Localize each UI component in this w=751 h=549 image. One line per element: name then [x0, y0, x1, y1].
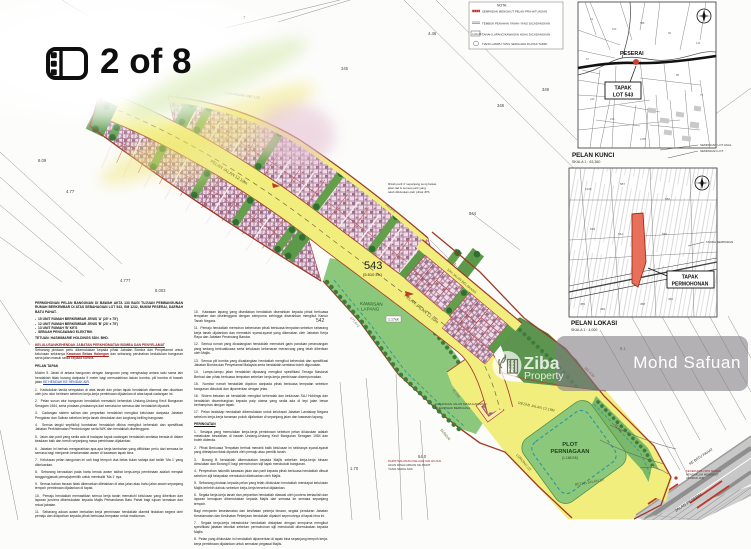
- svg-text:544: 544: [469, 211, 477, 216]
- svg-text:PERMOHONAN: PERMOHONAN: [672, 282, 709, 288]
- svg-text:TANDA SEMPADAN: TANDA SEMPADAN: [706, 240, 733, 244]
- svg-text:TANAH LAPANG/KAWASAN HIJAU DIC: TANAH LAPANG/KAWASAN HIJAU DICADANGKAN: [482, 32, 550, 36]
- svg-text:TIANG LAMPU YANG SEDIA ADA DI: TIANG LAMPU YANG SEDIA ADA DI ATAS TAPAK: [482, 42, 547, 46]
- svg-text:544: 544: [618, 232, 623, 236]
- svg-text:SEMPADAN LOT ASAL: SEMPADAN LOT ASAL: [700, 143, 732, 147]
- svg-text:LAPANG: LAPANG: [361, 307, 380, 312]
- svg-text:TAPAK: TAPAK: [682, 275, 699, 281]
- svg-text:OLEH PIHAK BERKUASA: OLEH PIHAK BERKUASA: [435, 406, 470, 410]
- svg-text:TEMBOK PENAHAN TANAH YANG DICA: TEMBOK PENAHAN TANAH YANG DICADANGKAN: [482, 21, 550, 25]
- svg-text:4.46: 4.46: [428, 31, 437, 36]
- svg-text:588: 588: [640, 21, 645, 25]
- svg-text:LOT 543: LOT 543: [613, 93, 634, 99]
- svg-text:4.777: 4.777: [120, 278, 131, 283]
- svg-text:SEMPADAN MENGIKUT PELAN PRA-HI: SEMPADAN MENGIKUT PELAN PRA-HITUNGAN: [482, 10, 547, 14]
- svg-text:LULUS: LULUS: [473, 32, 482, 36]
- svg-text:NOTA:: NOTA:: [497, 4, 507, 8]
- svg-text:SEMPADAN LOT: SEMPADAN LOT: [700, 149, 723, 153]
- svg-text:460: 460: [668, 297, 673, 301]
- svg-text:163: 163: [612, 27, 617, 31]
- svg-text:1.70: 1.70: [350, 466, 359, 471]
- svg-text:549: 549: [662, 232, 667, 236]
- svg-text:349: 349: [542, 87, 550, 92]
- svg-text:1146: 1146: [585, 187, 592, 191]
- svg-text:1.17ek: 1.17ek: [388, 318, 399, 322]
- svg-text:PESERAI: PESERAI: [620, 51, 644, 57]
- svg-text:348: 348: [497, 103, 505, 108]
- svg-text:543: 543: [364, 260, 382, 272]
- svg-text:SKALA 1 : 4,000: SKALA 1 : 4,000: [571, 328, 597, 332]
- svg-text:456: 456: [600, 307, 605, 311]
- svg-text:UKURAN JKR: UKURAN JKR: [686, 476, 704, 480]
- svg-text:8.003: 8.003: [155, 288, 166, 293]
- svg-text:TAPAK: TAPAK: [614, 86, 631, 92]
- svg-text:YANG SEDIA ADA: YANG SEDIA ADA: [388, 467, 413, 471]
- svg-text:1205: 1205: [640, 137, 646, 141]
- svg-text:PELAN KUNCI: PELAN KUNCI: [572, 152, 615, 159]
- svg-text:SKALA 1 : 63,360: SKALA 1 : 63,360: [572, 160, 600, 164]
- svg-text:196: 196: [610, 117, 615, 121]
- svg-text:telah diluluskan oleh pihak JP: telah diluluskan oleh pihak JPS: [388, 190, 430, 194]
- svg-text:4.77: 4.77: [66, 189, 75, 194]
- svg-text:PLOT: PLOT: [562, 442, 578, 448]
- svg-text:142: 142: [696, 41, 701, 45]
- svg-text:458: 458: [640, 302, 645, 306]
- svg-text:(5.510 EK): (5.510 EK): [363, 272, 383, 277]
- svg-text:Property: Property: [524, 370, 564, 382]
- svg-text:PELAN LOKASI: PELAN LOKASI: [571, 320, 617, 327]
- svg-text:587: 587: [620, 182, 625, 186]
- svg-text:240: 240: [590, 97, 595, 101]
- svg-text:455: 455: [580, 302, 585, 306]
- svg-text:(1.165 EK): (1.165 EK): [562, 456, 578, 460]
- svg-text:PERNIAGAAN: PERNIAGAAN: [551, 449, 590, 455]
- svg-text:562: 562: [665, 197, 670, 201]
- svg-text:548: 548: [590, 227, 595, 231]
